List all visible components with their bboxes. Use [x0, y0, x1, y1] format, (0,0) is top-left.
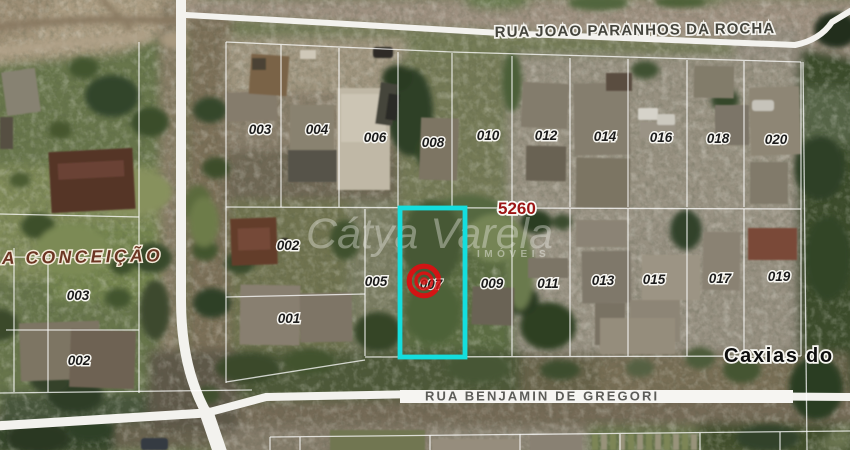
svg-text:016: 016: [650, 130, 673, 145]
svg-text:003: 003: [249, 122, 272, 137]
svg-text:013: 013: [592, 273, 615, 288]
svg-text:014: 014: [594, 129, 617, 144]
svg-text:017: 017: [709, 271, 733, 286]
svg-text:A CONCEIÇÃO: A CONCEIÇÃO: [1, 244, 164, 268]
svg-text:019: 019: [768, 269, 791, 284]
svg-text:012: 012: [535, 128, 558, 143]
svg-text:005: 005: [365, 274, 388, 289]
svg-text:RUA BENJAMIN DE GREGORI: RUA BENJAMIN DE GREGORI: [425, 389, 659, 404]
svg-text:IMÓVEIS: IMÓVEIS: [477, 247, 550, 260]
svg-text:5260: 5260: [498, 199, 536, 218]
svg-text:006: 006: [364, 130, 387, 145]
svg-text:002: 002: [277, 238, 300, 253]
svg-text:003: 003: [67, 288, 90, 303]
svg-text:008: 008: [422, 135, 445, 150]
svg-text:018: 018: [707, 131, 730, 146]
svg-text:Caxias do: Caxias do: [724, 345, 834, 367]
svg-text:009: 009: [481, 276, 504, 291]
svg-text:001: 001: [278, 311, 301, 326]
svg-text:015: 015: [643, 272, 666, 287]
svg-text:002: 002: [68, 353, 91, 368]
svg-text:010: 010: [477, 128, 500, 143]
svg-text:004: 004: [306, 122, 329, 137]
svg-text:011: 011: [537, 276, 559, 291]
svg-text:020: 020: [765, 132, 788, 147]
